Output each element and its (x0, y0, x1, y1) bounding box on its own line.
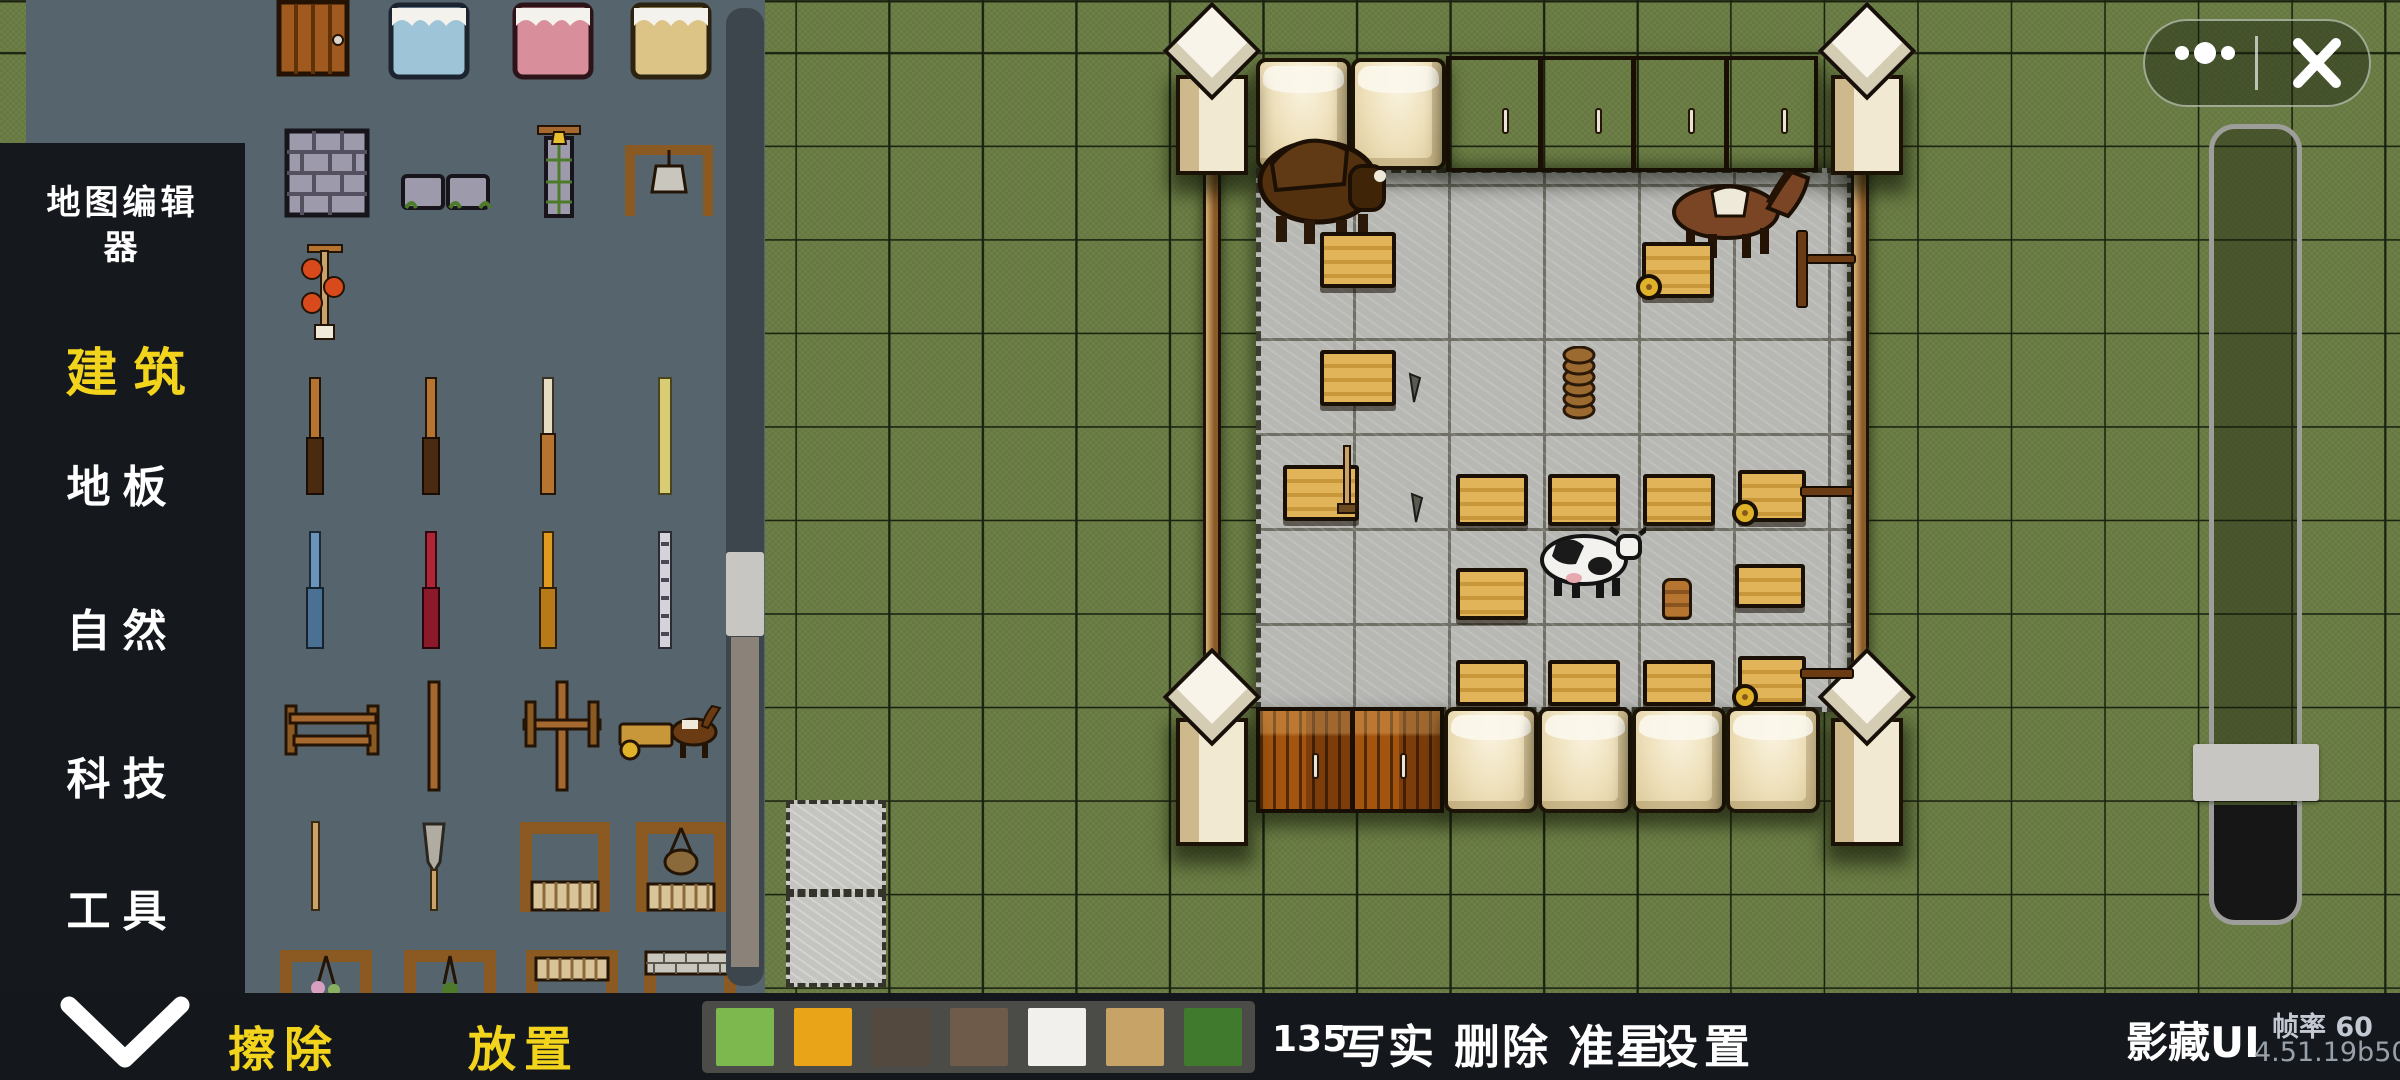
workbench (1320, 232, 1396, 288)
palette-item-wood-frame[interactable] (516, 820, 614, 916)
chevron-down-icon[interactable] (55, 995, 195, 1075)
awl-item (1408, 492, 1426, 524)
map-code: 135 (1272, 1019, 1347, 1060)
fence-pole-left (1203, 160, 1221, 716)
plank-door-separator (1631, 60, 1636, 168)
swatch-orange-ground[interactable] (794, 1008, 852, 1066)
cart-axle-stick (1800, 486, 1854, 497)
palette-item-wood-fence[interactable] (280, 698, 386, 762)
workbench (1456, 660, 1528, 706)
cream-wall-bottom-1 (1444, 707, 1538, 813)
palette-item-bone-pole[interactable] (652, 530, 678, 652)
palette-item-spade[interactable] (418, 818, 450, 914)
swatch-sand[interactable] (1106, 1008, 1164, 1066)
cow (1538, 526, 1646, 598)
palette-item-tall-post[interactable] (422, 680, 446, 794)
palette-item-bell-tower[interactable] (534, 124, 584, 220)
swatch-dark-rock[interactable] (872, 1008, 930, 1066)
workbench (1456, 474, 1528, 526)
tab-building[interactable]: 建筑 (0, 331, 245, 406)
palette-item-tan-pole[interactable] (535, 376, 561, 498)
panel-title: 地图编辑器 (40, 181, 205, 271)
palette-item-stone-wall[interactable] (284, 128, 370, 220)
palette-item-blue-pole[interactable] (302, 530, 328, 652)
tab-tools[interactable]: 工具 (0, 875, 245, 939)
plank-wall-bottom (1256, 707, 1444, 813)
door-handle-icon (1400, 753, 1407, 779)
workbench (1548, 660, 1620, 706)
workbench (1548, 474, 1620, 526)
plank-door-separator (1350, 711, 1355, 809)
swatch-mixed-stone[interactable] (950, 1008, 1008, 1066)
close-x-icon (2258, 21, 2370, 109)
door-handle-icon (1595, 108, 1602, 134)
palette-item-wood-pole-2[interactable] (418, 376, 444, 498)
palette-item-plant-frame[interactable] (400, 946, 500, 993)
category-sidebar: 地图编辑器 建筑 地板 自然 科技 工具 (0, 143, 245, 993)
cart-wheel (1636, 274, 1662, 300)
palette-item-wood-gate[interactable] (522, 946, 622, 993)
door-handle-icon (1781, 108, 1788, 134)
palette-item-red-pole[interactable] (418, 530, 444, 652)
tool-buttons-group[interactable]: 写实 删除 准星 (1340, 1011, 1664, 1077)
tab-floor[interactable]: 地板 (0, 451, 245, 515)
cart-axle-stick (1800, 668, 1854, 679)
swatch-white-tile[interactable] (1028, 1008, 1086, 1066)
tab-tech[interactable]: 科技 (0, 743, 245, 807)
bottom-toolbar: 擦除 放置 135 写实 删除 准星 设置 影藏UI 帧率 60 4.51.19… (0, 993, 2400, 1080)
more-dots-icon (2145, 21, 2255, 109)
barrel (1662, 578, 1692, 620)
hoe-tool (1336, 444, 1358, 516)
plate-stack (1560, 346, 1598, 420)
palette-item-basket-frame[interactable] (632, 820, 730, 916)
zoom-slider-fill (2214, 805, 2297, 925)
stray-stone-tile (786, 800, 886, 893)
palette-item-stone-gate[interactable] (640, 946, 740, 993)
hitch-post (1796, 230, 1808, 308)
swatch-grass-light[interactable] (716, 1008, 774, 1066)
palette-item-wood-door[interactable] (276, 0, 350, 82)
plank-door-separator (1724, 60, 1729, 168)
palette-item-hanging-bell-frame[interactable] (622, 140, 716, 220)
cart-axle-stick (1806, 254, 1856, 264)
palette-item-horse-cart[interactable] (616, 700, 724, 762)
close-button[interactable] (2258, 21, 2370, 109)
fence-pole-right (1851, 160, 1869, 716)
palette-item-yellow-pole[interactable] (652, 376, 678, 498)
palette-item-bed-yellow[interactable] (630, 2, 712, 82)
tab-nature[interactable]: 自然 (0, 595, 245, 659)
palette-scrollbar-lower-fill (731, 637, 759, 967)
door-handle-icon (1688, 108, 1695, 134)
capsule-button-group (2143, 19, 2371, 107)
workbench (1735, 564, 1805, 608)
palette-item-lantern-pole[interactable] (298, 243, 350, 341)
zoom-slider-thumb[interactable] (2193, 744, 2319, 801)
awl-item (1406, 372, 1424, 404)
stray-stone-tile (786, 893, 886, 987)
workbench (1456, 568, 1528, 620)
workbench (1643, 660, 1715, 706)
workbench (1320, 350, 1396, 406)
palette-scrollbar-thumb[interactable] (726, 552, 764, 636)
plank-door-separator (1538, 60, 1543, 168)
palette-item-bed-pink[interactable] (512, 2, 594, 82)
erase-button[interactable]: 擦除 (228, 1010, 340, 1080)
palette-item-flower-frame[interactable] (276, 946, 376, 993)
palette-item-orange-pole[interactable] (535, 530, 561, 652)
place-button[interactable]: 放置 (468, 1010, 580, 1080)
cream-wall-bottom-2 (1538, 707, 1632, 813)
workbench (1643, 474, 1715, 526)
palette-item-bed-blue[interactable] (388, 2, 470, 82)
tile-swatch-tray (702, 1001, 1255, 1073)
zoom-slider-track[interactable] (2209, 124, 2302, 925)
swatch-grass-dark[interactable] (1184, 1008, 1242, 1066)
door-handle-icon (1502, 108, 1509, 134)
palette-item-cross-post[interactable] (520, 680, 604, 794)
version-label: 4.51.19b50 (2254, 1037, 2400, 1068)
cream-wall-bottom-3 (1632, 707, 1726, 813)
cart-wheel (1732, 500, 1758, 526)
palette-item-wood-stick[interactable] (306, 820, 324, 914)
door-handle-icon (1312, 753, 1319, 779)
bison (1252, 124, 1408, 248)
hide-ui-button[interactable]: 影藏UI (2126, 1009, 2260, 1070)
more-button[interactable] (2145, 21, 2255, 109)
cream-wall-bottom-4 (1726, 707, 1820, 813)
settings-button[interactable]: 设置 (1652, 1011, 1756, 1077)
plank-wall-top (1446, 56, 1818, 172)
palette-item-stone-wall-low[interactable] (400, 170, 492, 216)
map-editor-screen: 地图编辑器 建筑 地板 自然 科技 工具 擦除 放置 135 写实 删除 准星 … (0, 0, 2400, 1080)
palette-item-wood-pole[interactable] (302, 376, 328, 498)
cart-wheel (1732, 684, 1758, 710)
